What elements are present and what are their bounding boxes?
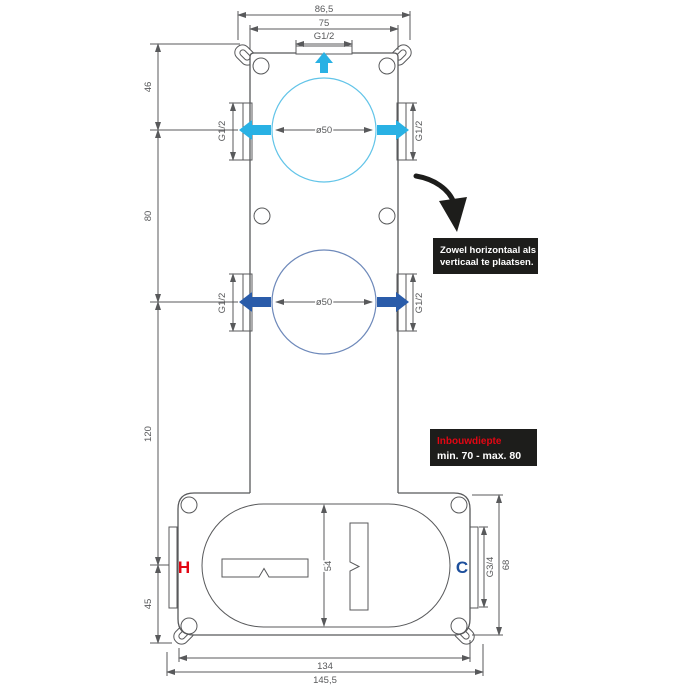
callout-arrow-icon [416,176,454,203]
dim-g12-left-1: G1/2 [217,121,228,142]
dim-lower-height: 68 [501,560,512,571]
placement-callout: Zowel horizontaal als verticaal te plaat… [433,238,538,274]
technical-drawing-page: ø50 ø50 86,5 75 G1/2 46 80 120 45 G1/2 G… [0,0,685,685]
mixer-installation-diagram: ø50 ø50 86,5 75 G1/2 46 80 120 45 G1/2 G… [0,0,685,685]
port-hot [169,527,177,608]
depth-callout-title: Inbouwdiepte [437,436,502,447]
dim-top-inner: 75 [319,18,330,29]
callout-arrowhead-icon [439,197,467,232]
dim-valve-height: 54 [323,561,334,572]
cold-label: C [456,558,468,577]
depth-callout: Inbouwdiepte min. 70 - max. 80 [430,429,537,466]
dim-top-outer: 86,5 [315,4,334,15]
dim-left-bottom: 45 [143,599,154,610]
dim-bottom-outer: 145,5 [313,675,337,685]
port-cold [470,527,478,608]
dim-g12-left-2: G1/2 [217,293,228,314]
body-upper-outline [250,53,398,493]
dim-dia-1: ø50 [316,125,332,136]
dim-g12-right-1: G1/2 [414,121,425,142]
dim-g12-right-2: G1/2 [414,293,425,314]
dim-left-top: 46 [143,82,154,93]
dim-dia-2: ø50 [316,297,332,308]
dim-bottom-inner: 134 [317,661,333,672]
dim-top-port: G1/2 [314,31,335,42]
placement-callout-line2: verticaal te plaatsen. [440,257,533,268]
hot-label: H [178,558,190,577]
dim-left-mid: 80 [143,211,154,222]
depth-callout-range: min. 70 - max. 80 [437,450,521,462]
dim-left-lower: 120 [143,426,154,442]
placement-callout-line1: Zowel horizontaal als [440,245,536,256]
dim-outlet-thread: G3/4 [485,557,496,578]
